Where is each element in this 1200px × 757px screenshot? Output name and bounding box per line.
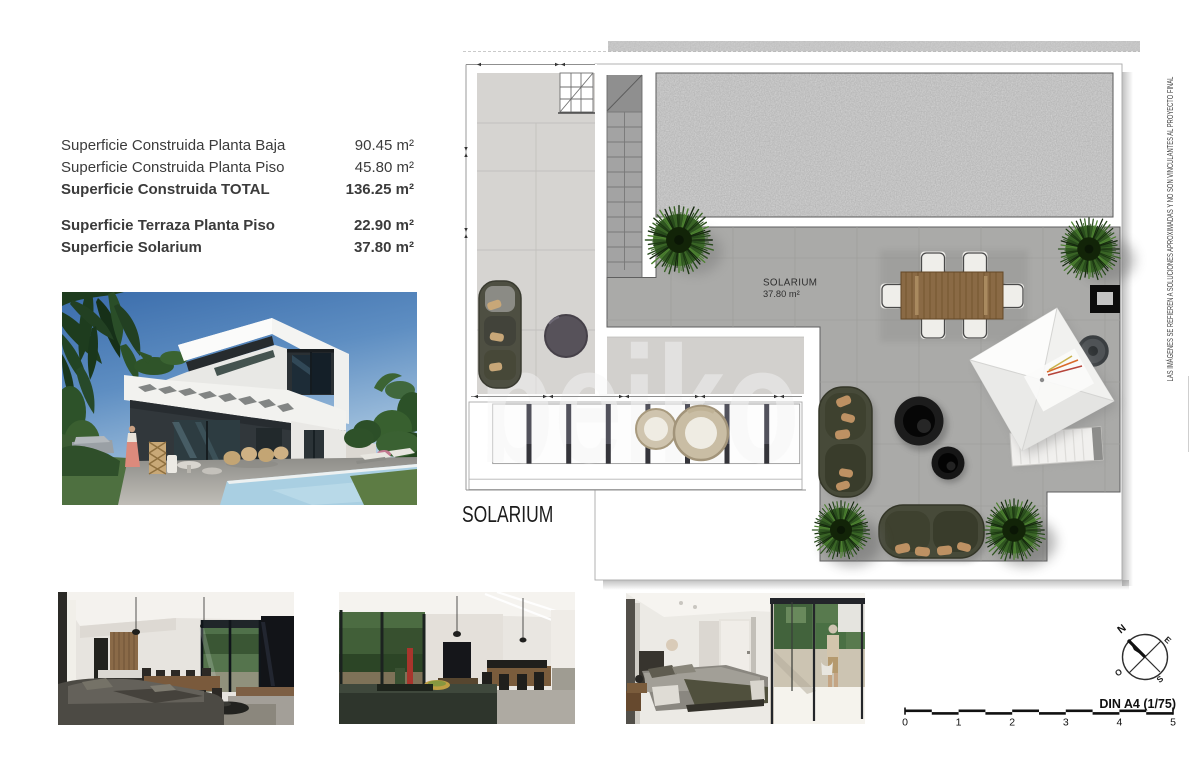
svg-text:3: 3 <box>1063 717 1069 729</box>
svg-text:0: 0 <box>902 717 908 729</box>
svg-text:2: 2 <box>1009 717 1015 729</box>
svg-text:4: 4 <box>1116 717 1122 729</box>
svg-text:37.80 m²: 37.80 m² <box>763 289 800 299</box>
svg-text:SOLARIUM: SOLARIUM <box>763 278 817 289</box>
svg-text:O: O <box>1113 666 1124 678</box>
svg-text:5: 5 <box>1170 717 1176 729</box>
svg-text:1: 1 <box>956 717 962 729</box>
svg-text:N: N <box>1115 622 1128 636</box>
svg-text:DIN A4 (1/75): DIN A4 (1/75) <box>1099 697 1176 711</box>
svg-text:S: S <box>1154 673 1165 685</box>
